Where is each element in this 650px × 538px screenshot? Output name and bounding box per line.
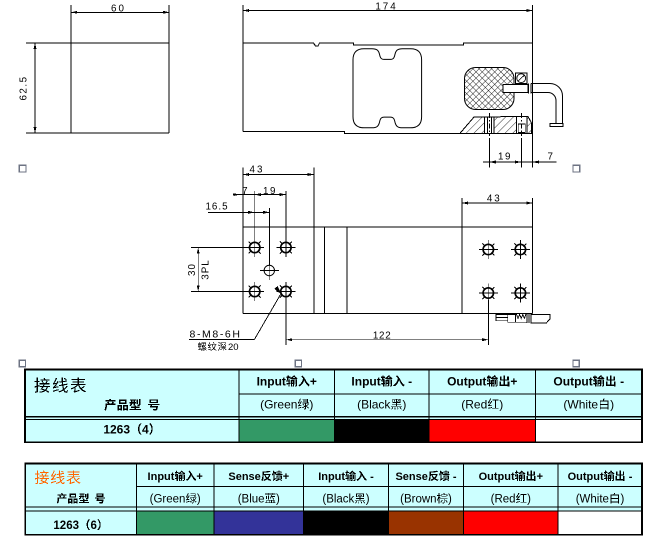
svg-text:): ) xyxy=(276,494,280,506)
svg-text:122: 122 xyxy=(373,331,392,342)
svg-text:Input: Input xyxy=(351,375,380,389)
svg-text:(Green: (Green xyxy=(260,398,297,412)
svg-text:Output: Output xyxy=(447,375,486,389)
svg-text:8-M8-6H: 8-M8-6H xyxy=(190,329,242,341)
svg-text:): ) xyxy=(610,398,614,412)
svg-text:): ) xyxy=(527,494,531,506)
svg-text:(Black: (Black xyxy=(357,398,391,412)
svg-text:(Brown: (Brown xyxy=(400,494,436,506)
svg-text:6: 6 xyxy=(90,520,96,532)
svg-text:30: 30 xyxy=(187,263,198,276)
svg-text:62.5: 62.5 xyxy=(19,75,30,100)
svg-text:): ) xyxy=(309,398,313,412)
svg-text:Output: Output xyxy=(568,471,604,483)
svg-text:-: - xyxy=(367,471,374,483)
svg-text:(Blue: (Blue xyxy=(238,494,265,506)
svg-text:7: 7 xyxy=(242,186,247,197)
svg-text:43: 43 xyxy=(487,193,502,204)
svg-text:+: + xyxy=(510,375,517,389)
svg-text:): ) xyxy=(402,398,406,412)
svg-text:Output: Output xyxy=(479,471,515,483)
svg-text:(White: (White xyxy=(563,398,598,412)
svg-text:+: + xyxy=(283,471,289,483)
svg-text:): ) xyxy=(499,398,503,412)
svg-text:-: - xyxy=(450,471,457,483)
svg-text:20: 20 xyxy=(228,342,239,353)
svg-text:-: - xyxy=(617,375,624,389)
svg-text:1263: 1263 xyxy=(103,423,130,437)
svg-text:+: + xyxy=(310,375,317,389)
svg-text:): ) xyxy=(448,494,452,506)
svg-text:(White: (White xyxy=(576,494,609,506)
svg-text:174: 174 xyxy=(375,1,397,12)
svg-text:Input: Input xyxy=(257,375,286,389)
svg-text:): ) xyxy=(366,494,370,506)
svg-text:Input: Input xyxy=(148,471,175,483)
svg-text:1263: 1263 xyxy=(53,520,79,532)
svg-text:): ) xyxy=(197,494,201,506)
svg-text:+: + xyxy=(537,471,543,483)
svg-text:4: 4 xyxy=(142,423,149,437)
svg-text:(Black: (Black xyxy=(322,494,354,506)
svg-text:(Red: (Red xyxy=(461,398,487,412)
svg-text:19: 19 xyxy=(498,151,512,162)
svg-text:Output: Output xyxy=(553,375,592,389)
svg-text:Sense: Sense xyxy=(228,471,260,483)
svg-text:3PL: 3PL xyxy=(201,259,212,279)
svg-text:19: 19 xyxy=(263,186,277,197)
svg-text:(Green: (Green xyxy=(150,494,186,506)
svg-text:60: 60 xyxy=(111,4,126,15)
svg-text:-: - xyxy=(405,375,412,389)
svg-text:7: 7 xyxy=(548,151,555,162)
svg-text:(Red: (Red xyxy=(491,494,516,506)
svg-text:43: 43 xyxy=(250,165,265,176)
svg-text:+: + xyxy=(196,471,202,483)
svg-text:Input: Input xyxy=(318,471,345,483)
svg-text:16.5: 16.5 xyxy=(205,202,228,213)
svg-text:): ) xyxy=(620,494,624,506)
svg-text:-: - xyxy=(626,471,633,483)
svg-text:Sense: Sense xyxy=(395,471,427,483)
